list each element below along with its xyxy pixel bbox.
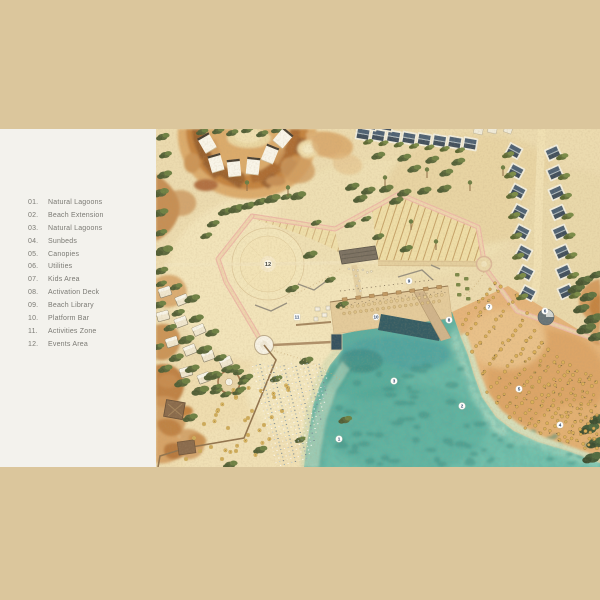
svg-text:2: 2 <box>461 404 464 409</box>
svg-text:8: 8 <box>448 318 451 323</box>
svg-text:7: 7 <box>488 305 491 310</box>
svg-text:10: 10 <box>373 315 379 320</box>
svg-text:11: 11 <box>295 315 300 320</box>
svg-text:6: 6 <box>544 309 547 314</box>
svg-text:4: 4 <box>559 423 562 428</box>
svg-text:5: 5 <box>518 387 521 392</box>
svg-text:12: 12 <box>265 262 271 268</box>
svg-text:9: 9 <box>408 279 411 284</box>
svg-text:3: 3 <box>393 379 396 384</box>
svg-text:1: 1 <box>338 437 341 442</box>
